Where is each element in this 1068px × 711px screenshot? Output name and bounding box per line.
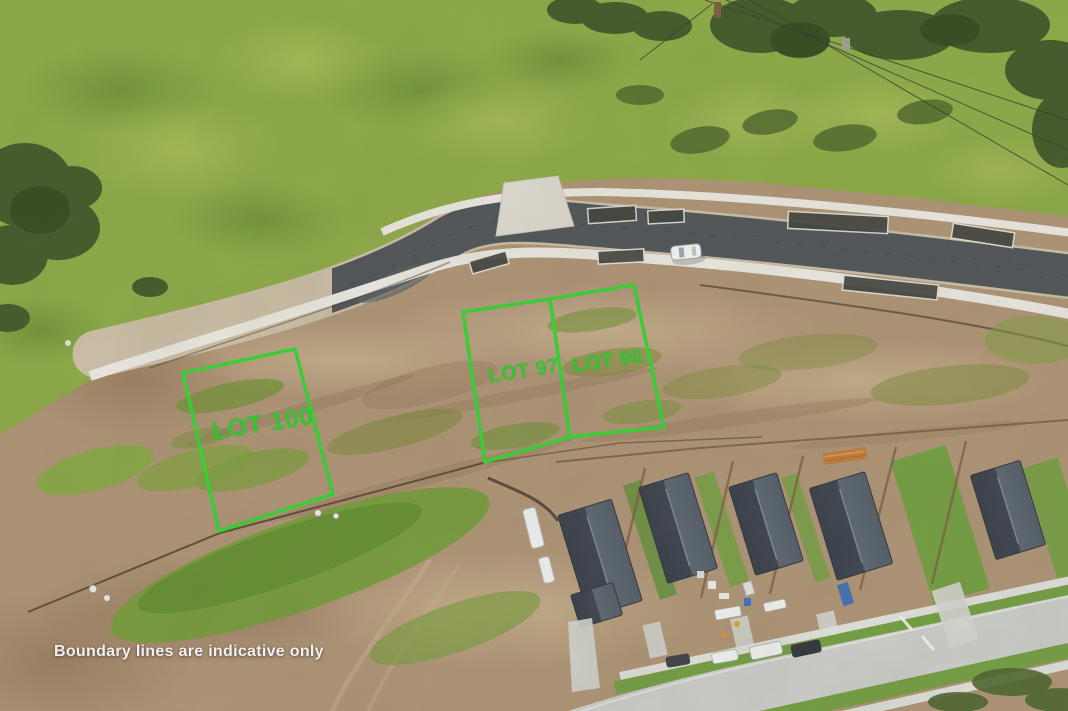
- boundary-disclaimer-watermark: Boundary lines are indicative only: [54, 643, 324, 661]
- aerial-photo: LOT 100 LOT 97 LOT 96 Boundary lines are…: [0, 0, 1068, 711]
- aerial-photo-background: [0, 0, 1068, 711]
